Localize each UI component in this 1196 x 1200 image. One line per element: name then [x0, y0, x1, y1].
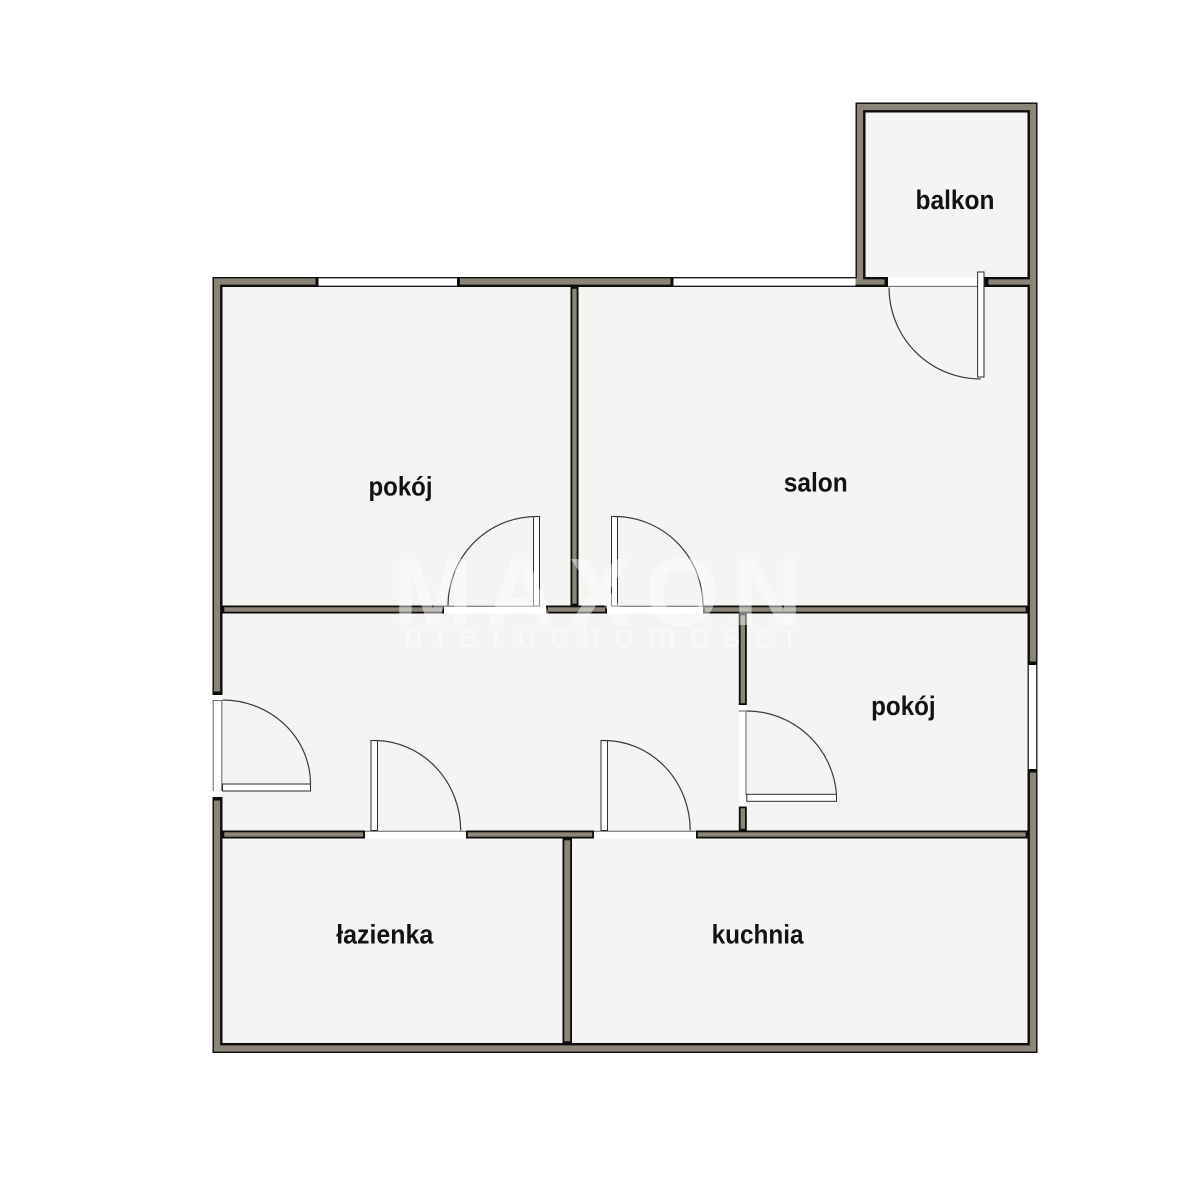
- svg-text:pokój: pokój: [369, 472, 433, 502]
- svg-text:nieruchomości: nieruchomości: [404, 617, 808, 655]
- svg-text:łazienka: łazienka: [336, 920, 433, 950]
- svg-text:salon: salon: [784, 468, 848, 498]
- svg-text:pokój: pokój: [871, 691, 936, 721]
- svg-text:kuchnia: kuchnia: [712, 920, 804, 950]
- svg-text:balkon: balkon: [916, 185, 995, 215]
